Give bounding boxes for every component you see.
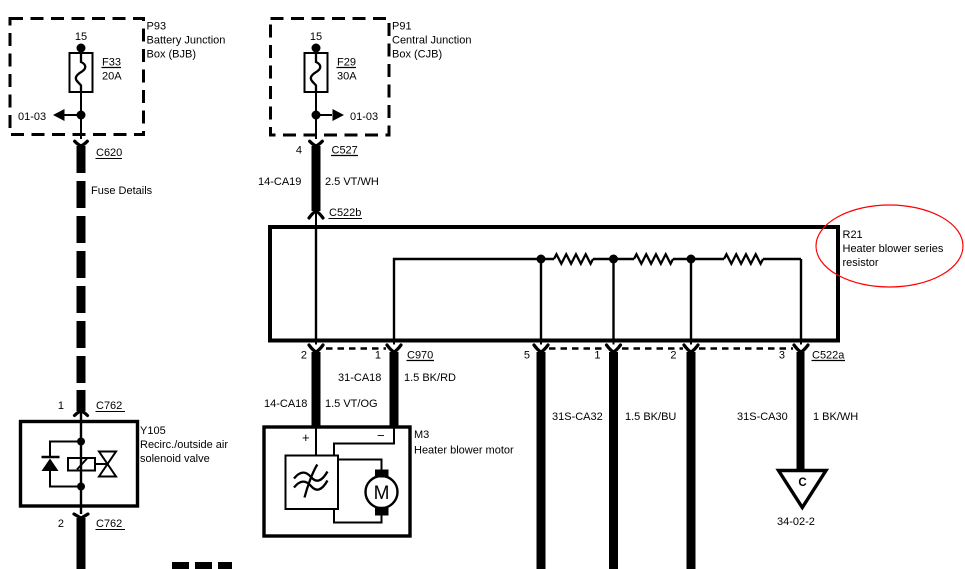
svg-text:1 BK/WH: 1 BK/WH [813, 411, 858, 423]
svg-text:31S-CA30: 31S-CA30 [737, 411, 788, 423]
svg-text:F29: F29 [337, 57, 356, 69]
svg-text:C522b: C522b [329, 207, 361, 219]
svg-text:14-CA19: 14-CA19 [258, 176, 301, 188]
svg-text:3: 3 [779, 350, 785, 362]
svg-text:31S-CA32: 31S-CA32 [552, 411, 603, 423]
svg-text:Y105: Y105 [140, 425, 166, 437]
svg-text:P93: P93 [147, 21, 167, 33]
svg-text:14-CA18: 14-CA18 [264, 398, 307, 410]
svg-text:C: C [798, 477, 806, 489]
svg-text:Central Junction: Central Junction [392, 35, 472, 47]
svg-text:C527: C527 [332, 145, 358, 157]
svg-text:+: + [302, 430, 310, 445]
svg-text:2: 2 [670, 350, 676, 362]
svg-text:C522a: C522a [812, 350, 845, 362]
svg-text:P91: P91 [392, 21, 412, 33]
svg-text:R21: R21 [843, 229, 863, 241]
svg-text:1.5 BK/RD: 1.5 BK/RD [404, 372, 456, 384]
svg-text:C620: C620 [96, 147, 122, 159]
svg-text:4: 4 [296, 145, 302, 157]
svg-text:−: − [377, 428, 385, 443]
svg-text:Box (CJB): Box (CJB) [392, 49, 442, 61]
svg-text:solenoid valve: solenoid valve [140, 453, 210, 465]
svg-text:31-CA18: 31-CA18 [338, 372, 381, 384]
svg-text:F33: F33 [102, 57, 121, 69]
svg-text:01-03: 01-03 [18, 111, 46, 123]
svg-text:Heater blower motor: Heater blower motor [414, 445, 514, 457]
svg-text:Battery Junction: Battery Junction [147, 35, 226, 47]
svg-text:15: 15 [75, 31, 87, 43]
svg-text:34-02-2: 34-02-2 [777, 516, 815, 528]
svg-text:M: M [374, 483, 390, 504]
svg-text:1.5 BK/BU: 1.5 BK/BU [625, 411, 676, 423]
svg-text:Fuse Details: Fuse Details [91, 185, 153, 197]
svg-text:Recirc./outside air: Recirc./outside air [140, 439, 228, 451]
svg-text:1: 1 [375, 350, 381, 362]
svg-text:20A: 20A [102, 71, 122, 83]
svg-text:2.5 VT/WH: 2.5 VT/WH [325, 176, 379, 188]
svg-text:C762: C762 [96, 400, 122, 412]
svg-text:01-03: 01-03 [350, 111, 378, 123]
svg-text:2: 2 [301, 350, 307, 362]
svg-text:5: 5 [524, 350, 530, 362]
svg-text:15: 15 [310, 31, 322, 43]
svg-text:resistor: resistor [843, 257, 879, 269]
svg-text:Box (BJB): Box (BJB) [147, 49, 197, 61]
svg-text:M3: M3 [414, 429, 429, 441]
svg-text:Heater blower series: Heater blower series [843, 243, 944, 255]
svg-text:1: 1 [594, 350, 600, 362]
svg-text:2: 2 [58, 518, 64, 530]
svg-text:C762: C762 [96, 518, 122, 530]
svg-text:1: 1 [58, 400, 64, 412]
svg-text:1.5 VT/OG: 1.5 VT/OG [325, 398, 378, 410]
svg-text:30A: 30A [337, 71, 357, 83]
svg-text:C970: C970 [407, 350, 433, 362]
